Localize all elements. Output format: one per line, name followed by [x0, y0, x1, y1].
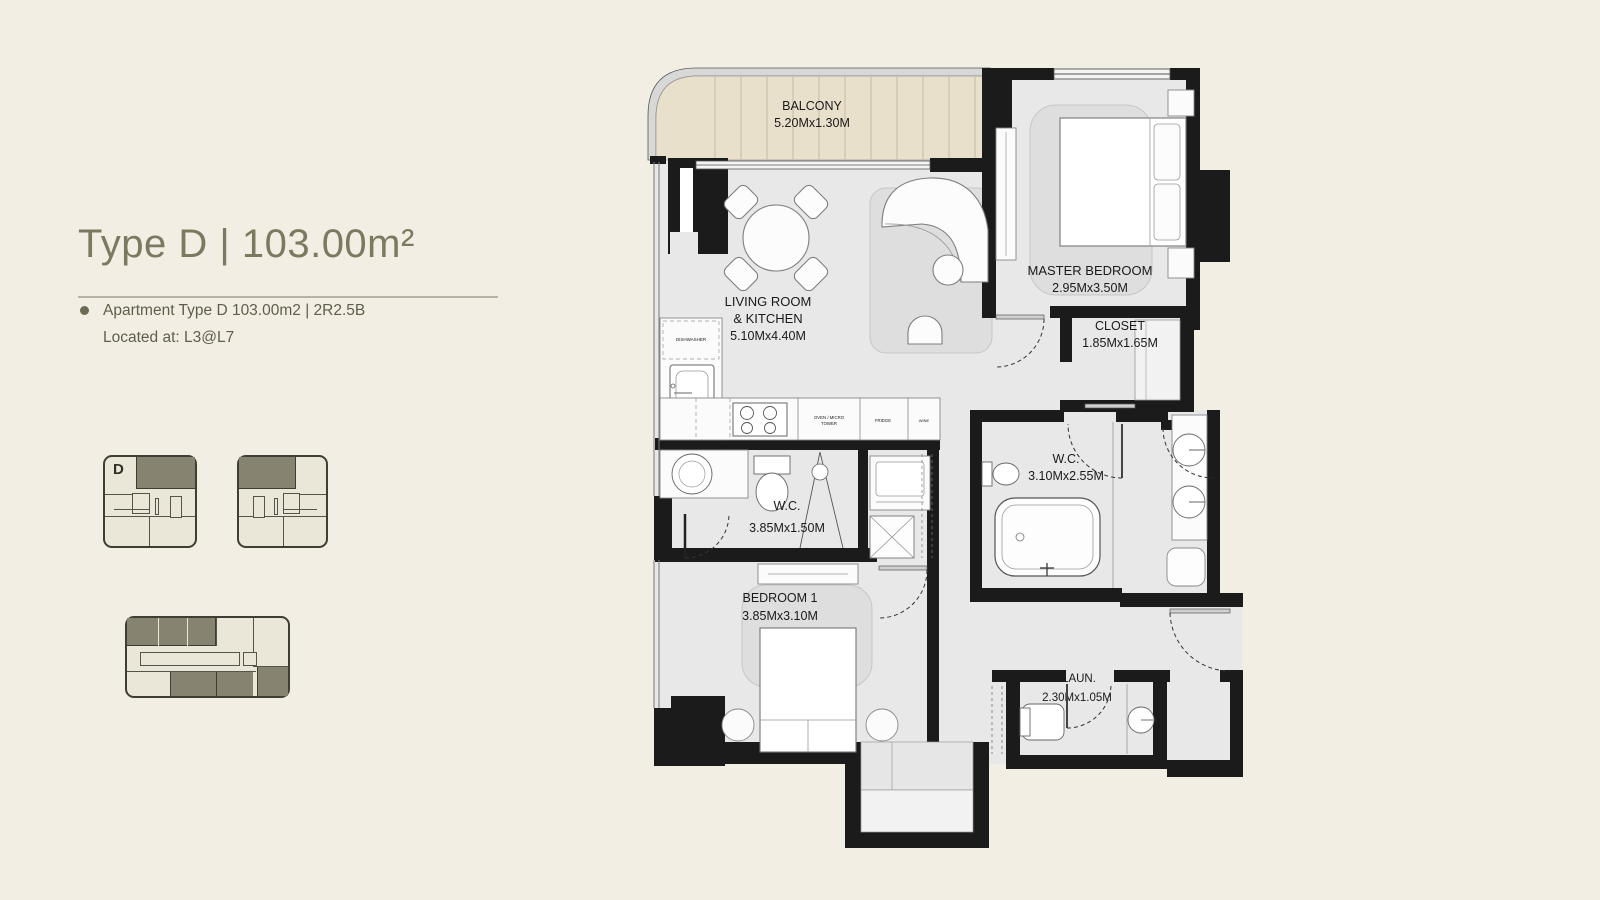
- oven-label-line2: TOWER: [821, 421, 837, 426]
- key-plan-unit-d: D: [103, 455, 197, 548]
- room-dims-wc-master: 3.10Mx2.55M: [1028, 469, 1104, 483]
- stool: [722, 709, 754, 741]
- bullet-icon: [80, 306, 89, 315]
- toilet: [993, 463, 1019, 485]
- dishwasher-label: DISHWASHER: [676, 337, 707, 342]
- dining-table: [743, 205, 809, 271]
- room-dims-laundry: 2.30Mx1.05M: [1042, 692, 1112, 704]
- page-title: Type D | 103.00m²: [78, 222, 415, 267]
- nightstand: [1168, 90, 1194, 116]
- stool: [866, 709, 898, 741]
- room-label-laundry: LAUN.: [1062, 673, 1096, 685]
- room-dims-balcony: 5.20Mx1.30M: [774, 116, 850, 130]
- room-label-closet: CLOSET: [1095, 319, 1145, 333]
- bench: [1167, 548, 1205, 586]
- column-notch: [670, 232, 698, 254]
- room-label-master: MASTER BEDROOM: [1028, 263, 1153, 278]
- room-dims-closet: 1.85Mx1.65M: [1082, 336, 1158, 350]
- room-dims-living: 5.10Mx4.40M: [730, 329, 806, 343]
- key-plan-building: [125, 616, 290, 698]
- shower-basin: [812, 464, 828, 480]
- title-divider: [78, 296, 498, 298]
- key-plan-highlight: [239, 457, 296, 489]
- page: Type D | 103.00m² Apartment Type D 103.0…: [0, 0, 1600, 900]
- nightstand: [1168, 248, 1194, 278]
- closet-slider: [1085, 404, 1135, 408]
- room-label-balcony: BALCONY: [782, 99, 842, 113]
- location-text: Located at: L3@L7: [103, 329, 234, 347]
- key-plan-building-highlight: [127, 618, 216, 646]
- armchair: [908, 316, 942, 344]
- room-dims-wc-guest: 3.85Mx1.50M: [749, 521, 825, 535]
- unit-label: D: [113, 461, 124, 478]
- room-label-living-1: LIVING ROOM: [725, 294, 812, 309]
- wc-sink: [672, 454, 712, 494]
- floor-plan: BALCONY 5.20Mx1.30M: [630, 20, 1250, 880]
- balcony-area: BALCONY 5.20Mx1.30M: [648, 68, 990, 160]
- key-plan-unit-mirror: [237, 455, 328, 548]
- room-dims-master: 2.95Mx3.50M: [1052, 281, 1128, 295]
- room-label-living-2: & KITCHEN: [733, 311, 802, 326]
- oven-label-line1: OVEN / MICRO: [814, 415, 845, 420]
- room-dims-bedroom1: 3.85Mx3.10M: [742, 609, 818, 623]
- room-label-bedroom1: BEDROOM 1: [742, 591, 817, 605]
- fridge-label: FRIDGE: [875, 418, 891, 423]
- apartment-type-text: Apartment Type D 103.00m2 | 2R2.5B: [103, 302, 365, 320]
- side-table: [933, 255, 963, 285]
- room-label-wc-master: W.C.: [1052, 452, 1079, 466]
- wine-label: WINE: [919, 418, 930, 423]
- key-plan-highlight: [136, 457, 195, 489]
- cooktop: [733, 403, 787, 436]
- room-label-wc-guest: W.C.: [773, 499, 800, 513]
